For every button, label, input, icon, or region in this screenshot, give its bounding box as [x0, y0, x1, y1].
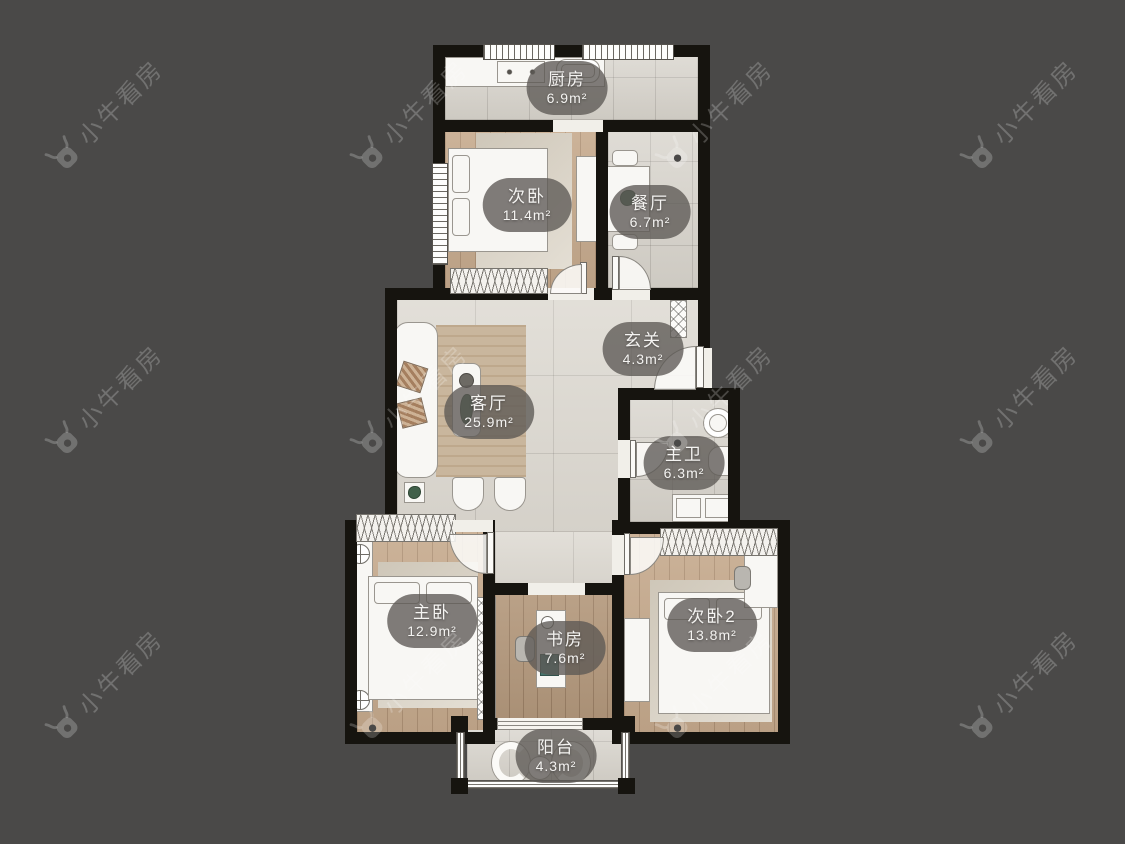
room-area: 25.9m²: [464, 414, 514, 431]
dining-chair: [612, 150, 638, 166]
room-area: 13.8m²: [687, 627, 737, 644]
bedroom3-window-radiator: [660, 528, 778, 556]
room-area: 7.6m²: [545, 650, 586, 667]
master-door-leaf: [487, 532, 494, 574]
master-door-opening: [453, 520, 493, 532]
room-area: 6.9m²: [547, 90, 588, 107]
room-name: 主卧: [407, 602, 457, 623]
desk-chair: [734, 566, 751, 590]
room-area: 4.3m²: [623, 351, 664, 368]
room-name: 书房: [545, 629, 586, 650]
wall-segment: [612, 732, 790, 744]
room-area: 6.7m²: [630, 214, 671, 231]
balcony-pillar: [451, 778, 468, 794]
wall-segment: [345, 520, 357, 744]
floor-plan: 厨房 6.9m² 次卧 11.4m² 餐厅 6.7m² 玄关 4.3m² 客厅 …: [0, 0, 1125, 844]
balcony-rail: [621, 732, 630, 780]
room-label-bedroom-3: 次卧2 13.8m²: [667, 598, 757, 652]
room-area: 4.3m²: [536, 758, 577, 775]
study-door-opening: [528, 583, 585, 595]
room-label-study: 书房 7.6m²: [525, 621, 606, 675]
kitchen-window: [483, 44, 555, 60]
kitchen-window: [582, 44, 674, 60]
balcony-rail: [456, 732, 465, 780]
wall-segment: [728, 388, 740, 534]
bathroom-door-opening: [618, 440, 630, 478]
door-leaf: [612, 256, 619, 290]
master-bedroom-window-radiator: [356, 514, 456, 542]
bedroom3-wardrobe: [624, 618, 650, 702]
room-label-bedroom-2: 次卧 11.4m²: [483, 178, 572, 232]
room-label-master-bedroom: 主卧 12.9m²: [387, 594, 477, 648]
balcony-pillar: [451, 716, 468, 732]
bedroom2-window: [432, 163, 448, 265]
kitchen-pass-opening: [553, 120, 603, 132]
room-label-entry: 玄关 4.3m²: [603, 322, 684, 376]
wall-segment: [778, 520, 790, 744]
entry-door-leaf: [696, 346, 704, 388]
room-name: 客厅: [464, 393, 514, 414]
floor-plan-canvas: 厨房 6.9m² 次卧 11.4m² 餐厅 6.7m² 玄关 4.3m² 客厅 …: [0, 0, 1125, 844]
balcony-pillar: [618, 778, 635, 794]
wall-segment: [385, 288, 397, 532]
room-area: 11.4m²: [503, 207, 552, 224]
room-area: 6.3m²: [664, 465, 705, 482]
bedroom2-radiator: [450, 268, 548, 294]
wall-segment: [345, 732, 495, 744]
room-name: 餐厅: [630, 193, 671, 214]
room-name: 厨房: [547, 69, 588, 90]
room-name: 次卧2: [687, 606, 737, 627]
room-label-dining: 餐厅 6.7m²: [610, 185, 691, 239]
balcony-pillar: [618, 716, 635, 732]
sink: [705, 498, 730, 518]
room-label-master-bath: 主卫 6.3m²: [644, 436, 725, 490]
room-label-kitchen: 厨房 6.9m²: [527, 61, 608, 115]
wall-segment: [596, 120, 608, 300]
room-label-living: 客厅 25.9m²: [444, 385, 534, 439]
room-name: 主卫: [664, 444, 705, 465]
pillow: [452, 155, 470, 193]
room-name: 阳台: [536, 737, 577, 758]
wall-segment: [698, 45, 710, 348]
sink: [676, 498, 701, 518]
room-name: 次卧: [503, 186, 552, 207]
armchair: [452, 477, 484, 511]
room-name: 玄关: [623, 330, 664, 351]
room-label-balcony: 阳台 4.3m²: [516, 729, 597, 783]
pillow: [452, 198, 470, 236]
armchair: [494, 477, 526, 511]
bedroom3-door-opening: [612, 535, 624, 575]
room-area: 12.9m²: [407, 623, 457, 640]
